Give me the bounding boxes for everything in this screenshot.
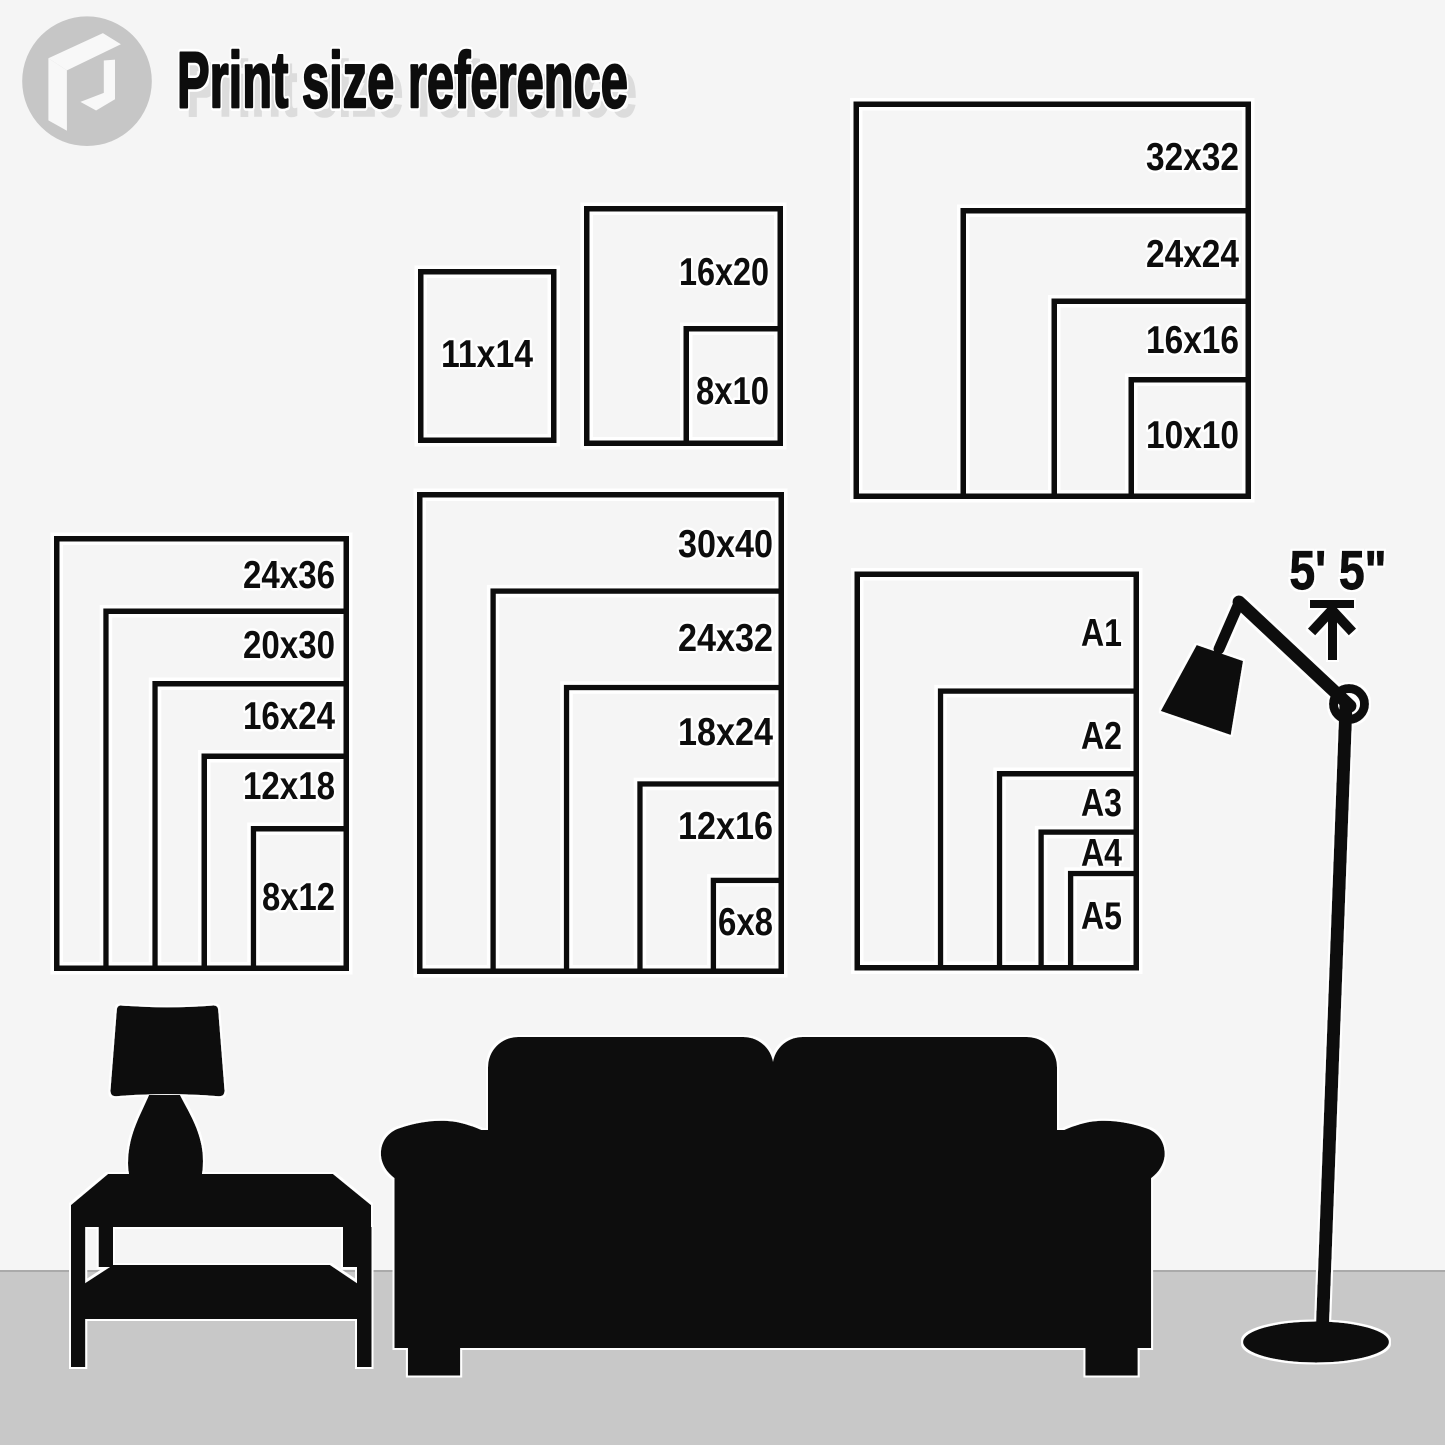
svg-text:6x8: 6x8 [718,901,773,944]
svg-text:16x16: 16x16 [1146,319,1239,362]
svg-text:5' 5": 5' 5" [1290,539,1387,601]
svg-text:A2: A2 [1081,715,1122,758]
svg-text:8x10: 8x10 [696,370,769,413]
svg-text:Print size reference: Print size reference [177,35,628,124]
svg-text:A3: A3 [1081,782,1122,825]
svg-text:A4: A4 [1081,832,1122,875]
svg-text:30x40: 30x40 [678,523,773,566]
svg-text:24x32: 24x32 [678,617,773,660]
svg-text:A5: A5 [1081,895,1122,938]
svg-text:24x24: 24x24 [1146,233,1239,276]
svg-text:10x10: 10x10 [1146,414,1239,457]
svg-text:16x24: 16x24 [243,695,335,738]
svg-text:12x16: 12x16 [678,805,773,848]
svg-text:11x14: 11x14 [441,333,533,376]
svg-text:12x18: 12x18 [243,765,335,808]
svg-text:16x20: 16x20 [679,251,769,294]
svg-text:18x24: 18x24 [678,711,773,754]
svg-text:8x12: 8x12 [262,876,335,919]
svg-text:20x30: 20x30 [243,624,335,667]
svg-text:A1: A1 [1081,612,1122,655]
svg-text:32x32: 32x32 [1146,136,1239,179]
svg-text:24x36: 24x36 [243,554,335,597]
